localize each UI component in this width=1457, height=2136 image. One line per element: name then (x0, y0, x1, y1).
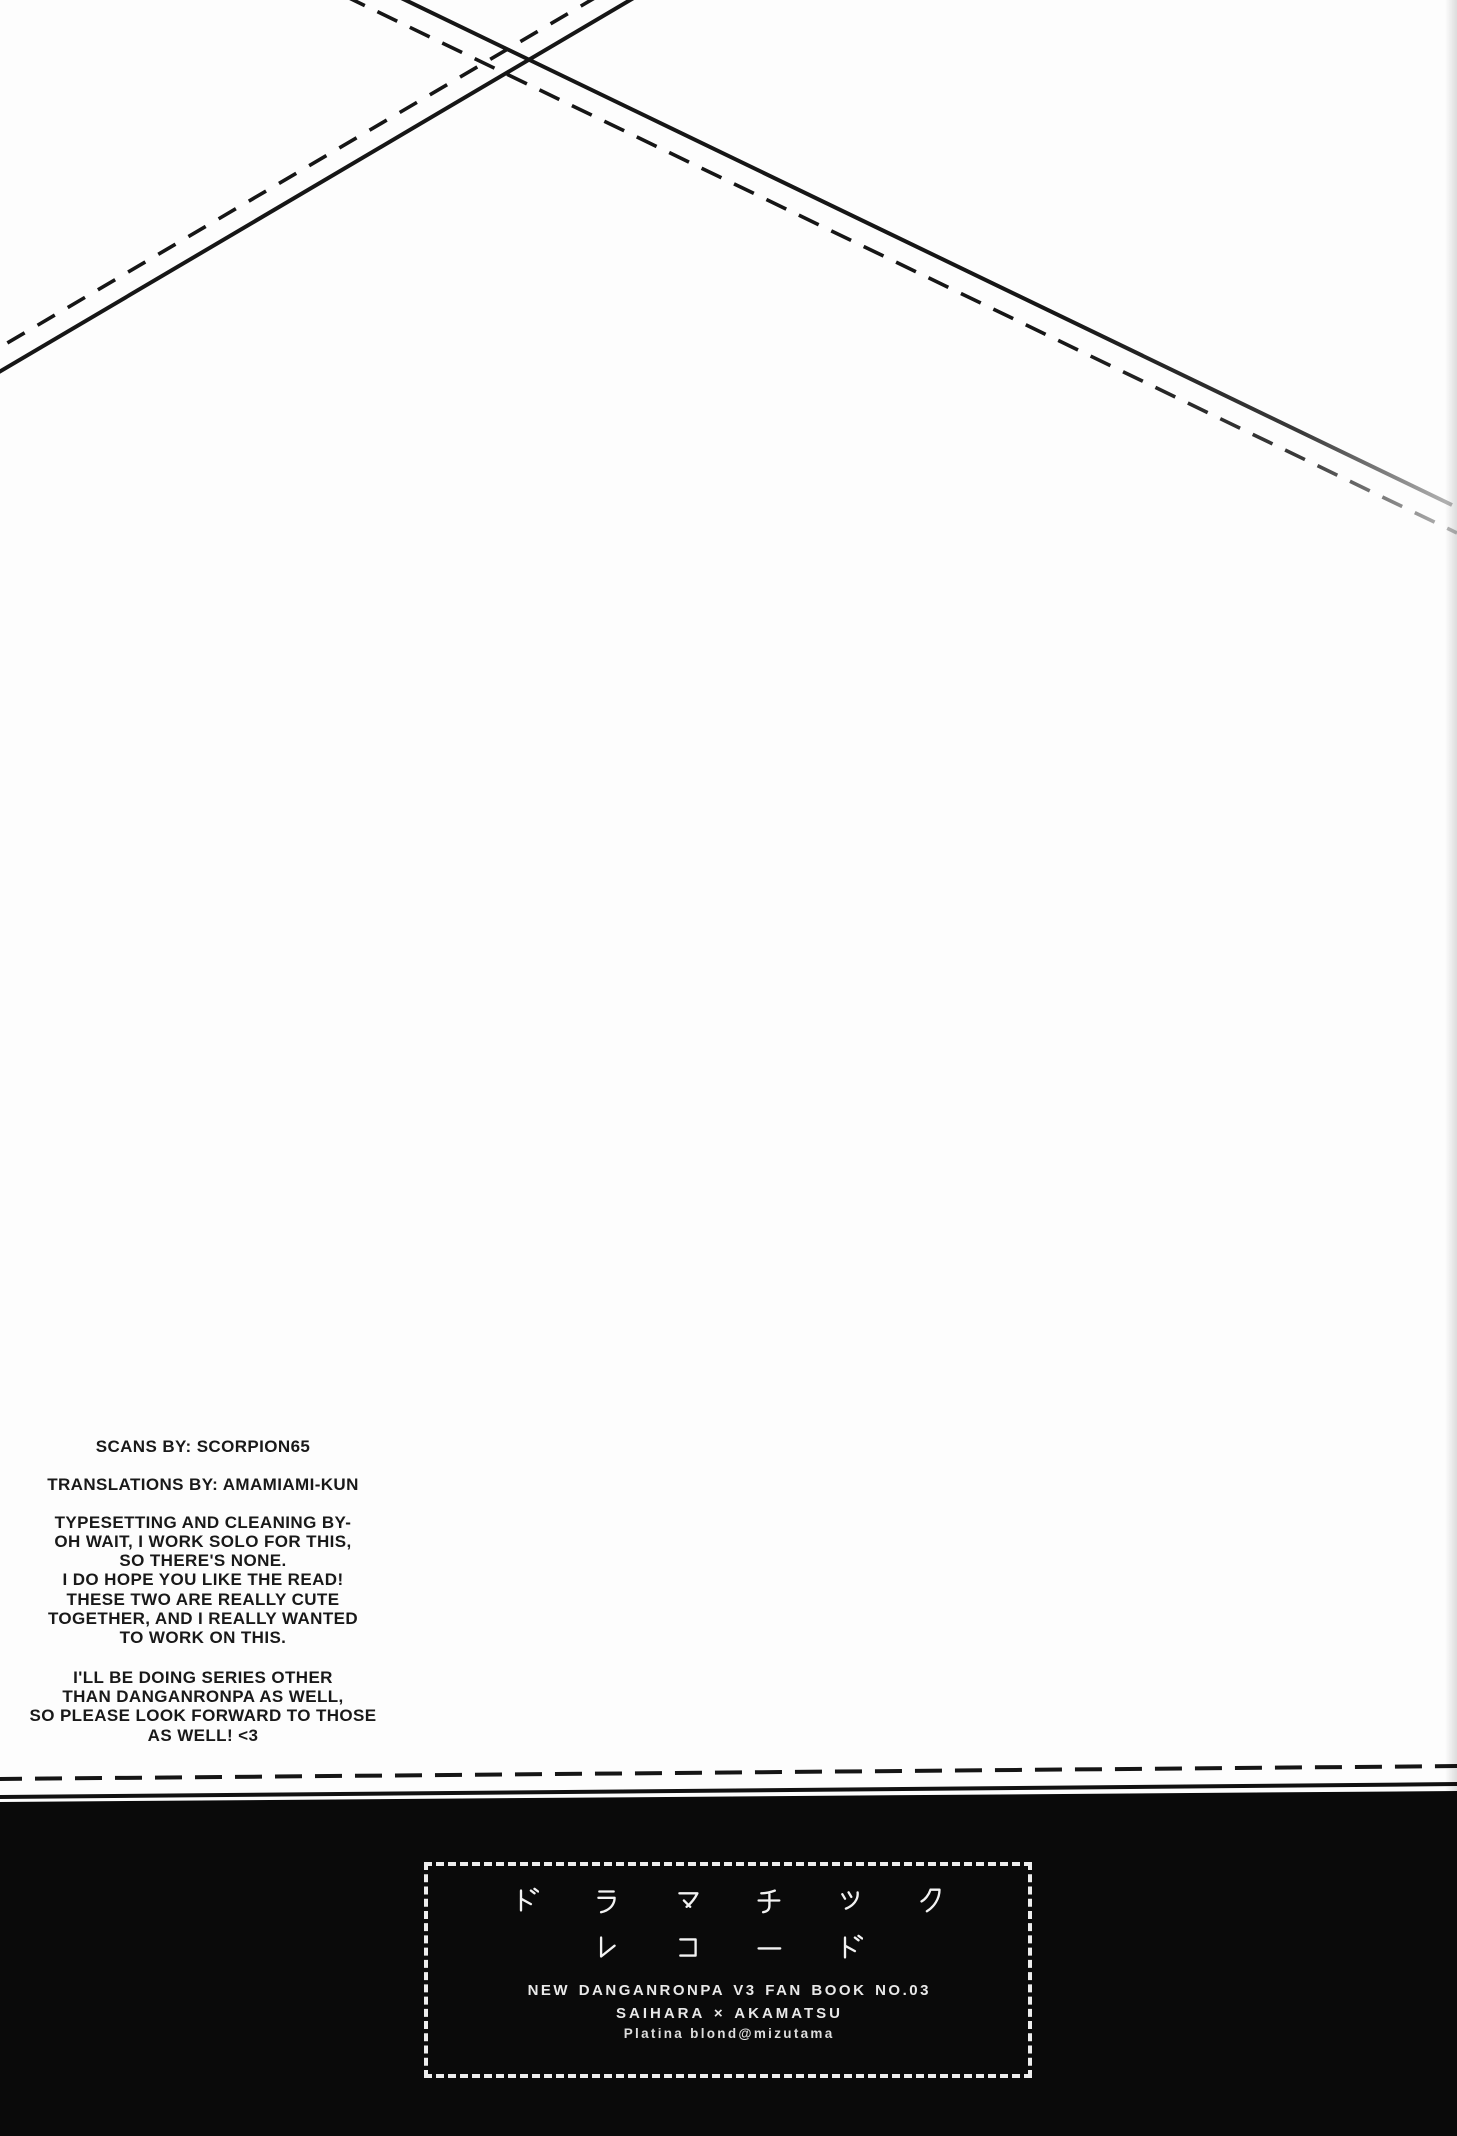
katakana-choonpu-glyph (755, 1934, 782, 1961)
credit-line: AS WELL! <3 (148, 1726, 259, 1745)
credit-line: SO PLEASE LOOK FORWARD TO THOSE (29, 1706, 376, 1725)
katakana-do-glyph (512, 1887, 539, 1914)
credit-line: THESE TWO ARE REALLY CUTE (67, 1590, 340, 1609)
credits-paragraph-typesetting: TYPESETTING AND CLEANING BY- OH WAIT, I … (8, 1513, 398, 1648)
scan-edge-shading (1445, 0, 1457, 1791)
credit-line: SO THERE'S NONE. (119, 1551, 286, 1570)
katakana-chi-glyph (755, 1887, 782, 1914)
katakana-ku-glyph (917, 1887, 944, 1914)
doujin-title-box: ドラマチック レコード NEW DANGANRONPA V3 FAN BOOK … (424, 1862, 1032, 2078)
credits-paragraph-translations: TRANSLATIONS BY: AMAMIAMI-KUN (8, 1475, 398, 1494)
doujin-title-jp-line1: ドラマチック (428, 1887, 1028, 1914)
katakana-re-glyph (593, 1934, 620, 1961)
diagonal-solid-line-left (0, 0, 637, 375)
katakana-ma-glyph (674, 1887, 701, 1914)
katakana-do-glyph (836, 1934, 863, 1961)
diagonal-solid-line-right (397, 0, 1452, 505)
fanbook-number-label: NEW DANGANRONPA V3 FAN BOOK NO.03 (428, 1982, 1028, 1999)
pairing-label: SAIHARA × AKAMATSU (428, 2005, 1028, 2022)
katakana-ra-glyph (593, 1887, 620, 1914)
diagonal-dashed-line-left (0, 0, 598, 352)
credit-line: THAN DANGANRONPA AS WELL, (62, 1687, 343, 1706)
credit-line: I'LL BE DOING SERIES OTHER (73, 1668, 333, 1687)
credit-line: TRANSLATIONS BY: AMAMIAMI-KUN (47, 1475, 359, 1494)
credit-line: TO WORK ON THIS. (120, 1628, 287, 1647)
credit-line: OH WAIT, I WORK SOLO FOR THIS, (54, 1532, 351, 1551)
black-footer-panel: ドラマチック レコード NEW DANGANRONPA V3 FAN BOOK … (0, 1789, 1457, 2136)
katakana-ttsu-glyph (836, 1887, 863, 1914)
katakana-ko-glyph (674, 1934, 701, 1961)
doujin-title-jp-line2: レコード (428, 1934, 1028, 1961)
credit-line: TYPESETTING AND CLEANING BY- (55, 1513, 352, 1532)
circle-credit-label: Platina blond@mizutama (428, 2026, 1028, 2041)
doujin-title-jp-text: ドラマチック (728, 1887, 729, 1888)
scanlation-credits: SCANS BY: SCORPION65 TRANSLATIONS BY: AM… (8, 1437, 398, 1745)
credits-paragraph-scans: SCANS BY: SCORPION65 (8, 1437, 398, 1456)
credit-line: SCANS BY: SCORPION65 (96, 1437, 311, 1456)
credit-line: I DO HOPE YOU LIKE THE READ! (62, 1570, 343, 1589)
credit-line: TOGETHER, AND I REALLY WANTED (48, 1609, 358, 1628)
separator-dashed-line (0, 1766, 1457, 1779)
diagonal-dashed-line-right (345, 0, 1457, 533)
doujin-title-jp-line2-text: レコード (728, 1934, 729, 1935)
scanned-page: SCANS BY: SCORPION65 TRANSLATIONS BY: AM… (0, 0, 1457, 2136)
credits-paragraph-outro: I'LL BE DOING SERIES OTHER THAN DANGANRO… (8, 1668, 398, 1745)
